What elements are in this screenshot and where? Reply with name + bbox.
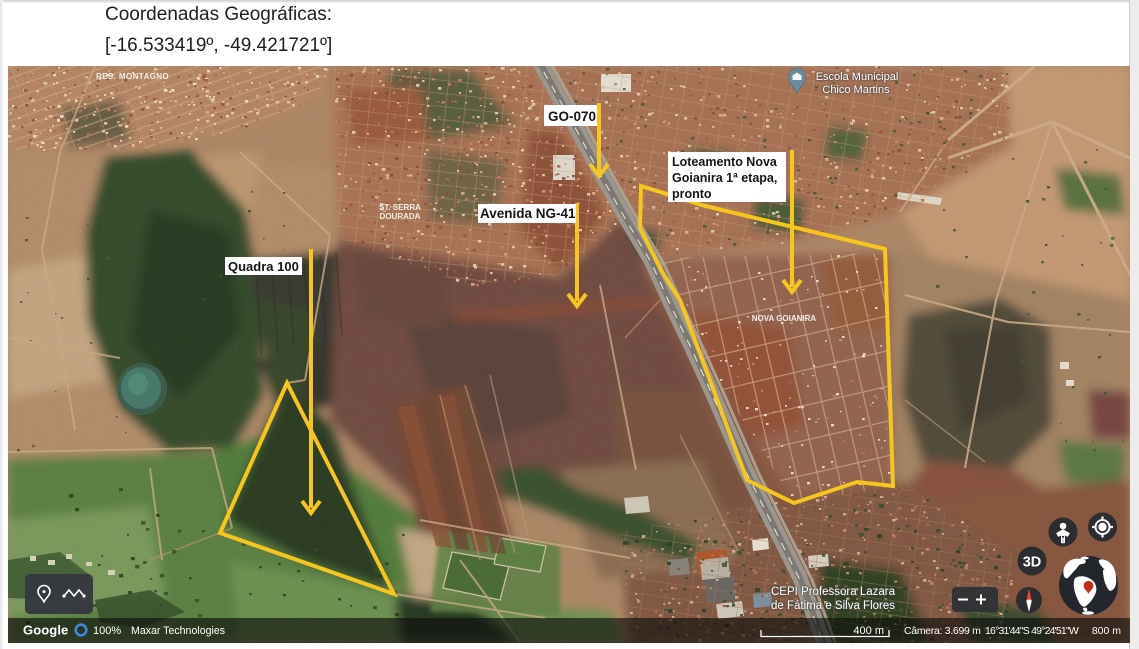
svg-text:Escola Municipal: Escola Municipal	[816, 71, 899, 83]
svg-text:Chico Martins: Chico Martins	[822, 84, 890, 96]
svg-text:CEPI Professora Lazara: CEPI Professora Lazara	[771, 586, 896, 598]
svg-text:Quadra 100: Quadra 100	[228, 259, 299, 274]
svg-text:100%: 100%	[93, 625, 121, 637]
svg-text:Maxar Technologies: Maxar Technologies	[131, 625, 225, 637]
svg-text:DOURADA: DOURADA	[380, 212, 421, 221]
svg-text:RES. MONTAGNO: RES. MONTAGNO	[96, 72, 169, 81]
svg-text:Avenida NG-41: Avenida NG-41	[480, 206, 576, 221]
svg-text:Goianira 1ª etapa,: Goianira 1ª etapa,	[672, 171, 777, 185]
svg-text:pronto: pronto	[672, 187, 712, 201]
svg-text:Loteamento Nova: Loteamento Nova	[672, 155, 778, 169]
svg-text:800 m: 800 m	[1092, 625, 1121, 637]
svg-text:NOVA GOIANIRA: NOVA GOIANIRA	[752, 314, 817, 323]
svg-text:Câmera: 3.699 m: Câmera: 3.699 m	[904, 625, 981, 637]
svg-text:16°31'44"S 49°24'51"W: 16°31'44"S 49°24'51"W	[985, 625, 1079, 637]
svg-text:Google: Google	[23, 623, 68, 638]
svg-text:ST. SERRA: ST. SERRA	[379, 203, 421, 212]
svg-text:400 m: 400 m	[853, 625, 884, 637]
svg-text:GO-070: GO-070	[548, 109, 596, 124]
svg-text:3D: 3D	[1023, 555, 1042, 571]
svg-text:de Fátima e Silva Flores: de Fátima e Silva Flores	[771, 600, 895, 612]
